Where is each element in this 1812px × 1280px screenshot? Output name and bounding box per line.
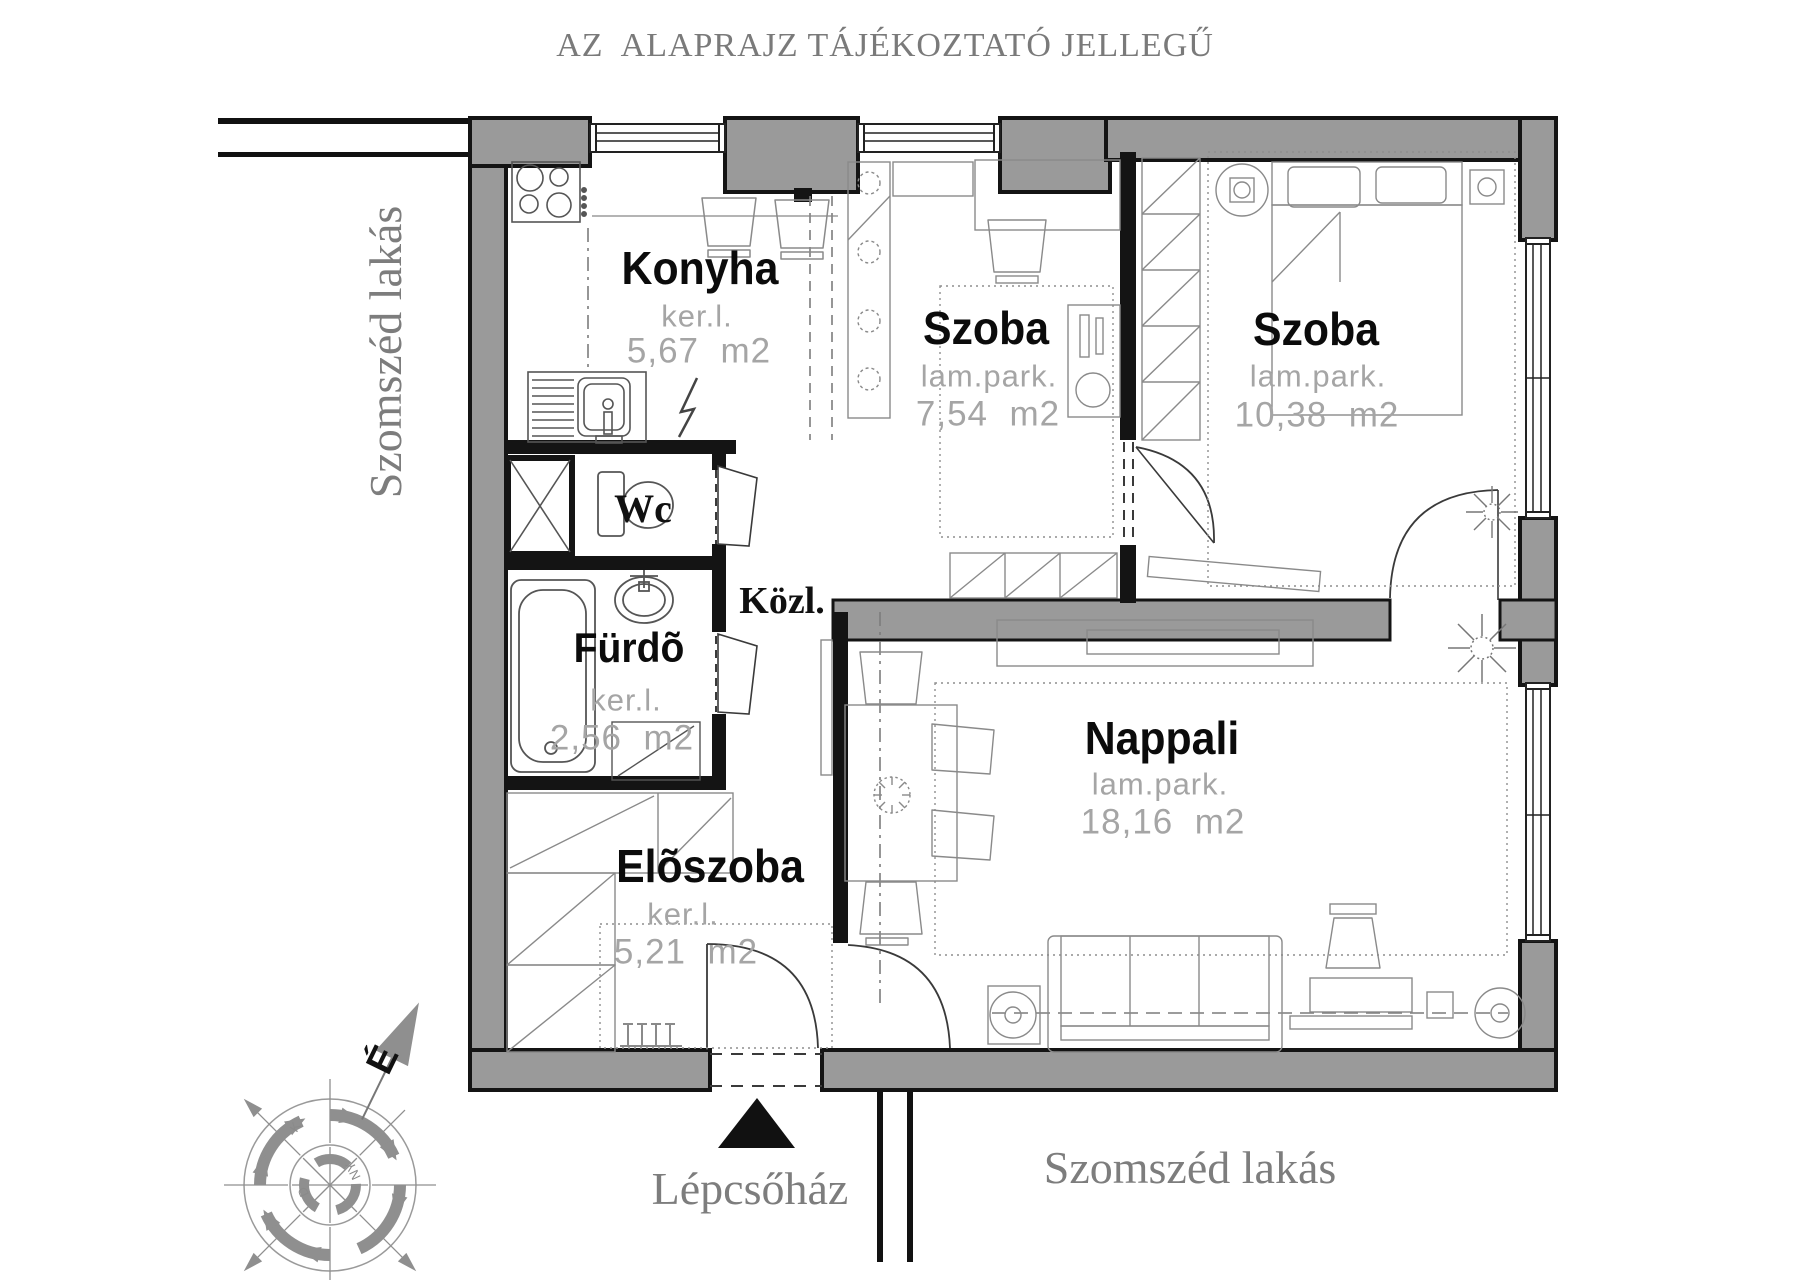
- plan-disclaimer-title: AZ ALAPRAJZ TÁJÉKOZTATÓ JELLEGŰ: [556, 29, 1214, 63]
- room-area-eloszoba: 5,21 m2: [614, 935, 758, 970]
- floor-plan-drawing: [0, 0, 1812, 1280]
- room-label-wc: Wc: [614, 489, 672, 529]
- doors: [707, 442, 1498, 1086]
- plant-icon: [1448, 614, 1516, 682]
- room-label-kozl: Közl.: [739, 582, 824, 620]
- room-floor-eloszoba: ker.l.: [647, 899, 718, 930]
- room-label-konyha: Konyha: [622, 245, 779, 291]
- floor-plan: AZ ALAPRAJZ TÁJÉKOZTATÓ JELLEGŰ Szomszéd…: [0, 0, 1812, 1280]
- room-label-szoba2: Szoba: [1253, 306, 1379, 352]
- plant-icon: [1466, 486, 1518, 538]
- room-area-nappali: 18,16 m2: [1081, 805, 1246, 840]
- staircase-label: Lépcsőház: [652, 1166, 849, 1212]
- compass-rose-icon: [224, 995, 436, 1280]
- room-floor-furdo: ker.l.: [590, 685, 661, 716]
- room-label-szoba1: Szoba: [923, 305, 1049, 351]
- room-floor-konyha: ker.l.: [661, 301, 732, 332]
- room-area-konyha: 5,67 m2: [627, 334, 771, 369]
- room-floor-nappali: lam.park.: [1092, 769, 1228, 800]
- room-label-nappali: Nappali: [1085, 715, 1240, 761]
- staircase-arrow-icon: [718, 1098, 795, 1148]
- room-floor-szoba1: lam.park.: [921, 361, 1057, 392]
- neighbor-apartment-label-bottom: Szomszéd lakás: [1044, 1145, 1337, 1191]
- room-area-szoba1: 7,54 m2: [916, 397, 1060, 432]
- room-label-eloszoba: Elõszoba: [616, 843, 804, 889]
- room-area-furdo: 2,56 m2: [550, 721, 694, 756]
- room-area-szoba2: 10,38 m2: [1235, 398, 1400, 433]
- room-floor-szoba2: lam.park.: [1250, 361, 1386, 392]
- neighbor-apartment-label-left: Szomszéd lakás: [363, 206, 409, 499]
- room-label-furdo: Fürdõ: [574, 627, 685, 669]
